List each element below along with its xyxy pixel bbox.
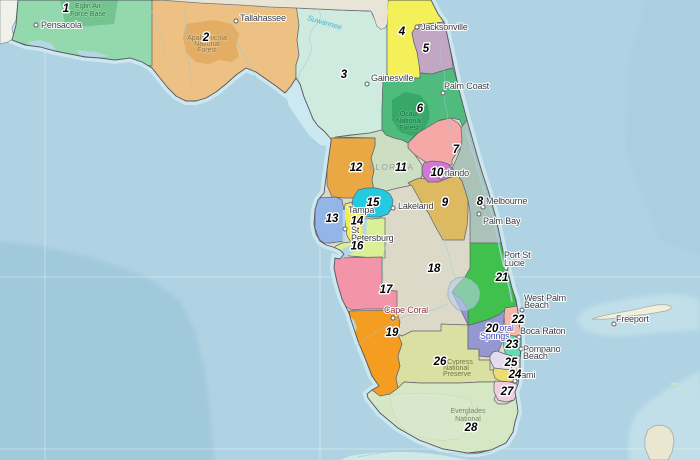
svg-text:11: 11 <box>395 162 407 174</box>
svg-text:Tallahassee: Tallahassee <box>240 13 286 23</box>
svg-text:9: 9 <box>442 197 449 209</box>
svg-text:21: 21 <box>495 272 509 284</box>
svg-text:Gainesville: Gainesville <box>371 73 414 83</box>
svg-text:Lucie: Lucie <box>504 258 525 268</box>
svg-text:4: 4 <box>398 26 406 38</box>
svg-text:25: 25 <box>504 357 518 369</box>
svg-text:Forest: Forest <box>197 47 217 54</box>
svg-text:Palm Coast: Palm Coast <box>444 81 490 91</box>
svg-text:19: 19 <box>386 327 399 339</box>
svg-text:14: 14 <box>351 216 364 228</box>
svg-text:7: 7 <box>453 144 460 156</box>
svg-text:Pensacola: Pensacola <box>41 20 82 30</box>
svg-text:26: 26 <box>433 356 447 368</box>
svg-text:National: National <box>396 118 422 125</box>
svg-text:17: 17 <box>380 284 393 296</box>
svg-text:Jacksonville: Jacksonville <box>421 22 468 32</box>
svg-text:2: 2 <box>202 32 210 44</box>
svg-text:24: 24 <box>508 369 522 381</box>
svg-text:5: 5 <box>423 43 430 55</box>
svg-text:Boca Raton: Boca Raton <box>520 326 566 336</box>
svg-text:Lakeland: Lakeland <box>398 201 433 211</box>
svg-text:13: 13 <box>326 213 339 225</box>
svg-text:27: 27 <box>500 386 514 398</box>
svg-text:20: 20 <box>485 323 499 335</box>
svg-text:Everglades: Everglades <box>450 408 486 415</box>
svg-text:Preserve: Preserve <box>443 371 471 378</box>
svg-text:10: 10 <box>431 167 444 179</box>
svg-text:Cape Coral: Cape Coral <box>384 305 428 315</box>
svg-text:15: 15 <box>367 197 380 209</box>
svg-text:Ocala: Ocala <box>400 111 418 118</box>
svg-text:1: 1 <box>63 3 69 15</box>
svg-text:16: 16 <box>351 241 364 253</box>
svg-text:22: 22 <box>511 314 525 326</box>
svg-text:Freeport: Freeport <box>616 314 649 324</box>
svg-text:FLORIDA: FLORIDA <box>369 162 414 172</box>
svg-text:Forest: Forest <box>399 125 419 132</box>
svg-text:Melbourne: Melbourne <box>486 196 527 206</box>
svg-text:3: 3 <box>341 69 348 81</box>
svg-text:Force Base: Force Base <box>70 11 106 18</box>
svg-text:Eglin Air: Eglin Air <box>75 3 101 10</box>
svg-text:12: 12 <box>350 162 363 174</box>
svg-text:Beach: Beach <box>524 300 549 310</box>
svg-text:23: 23 <box>505 339 519 351</box>
svg-text:Palm Bay: Palm Bay <box>483 216 521 226</box>
svg-text:18: 18 <box>428 263 441 275</box>
svg-text:6: 6 <box>417 103 424 115</box>
svg-text:28: 28 <box>464 422 478 434</box>
svg-text:8: 8 <box>477 196 484 208</box>
svg-text:Beach: Beach <box>523 351 548 361</box>
